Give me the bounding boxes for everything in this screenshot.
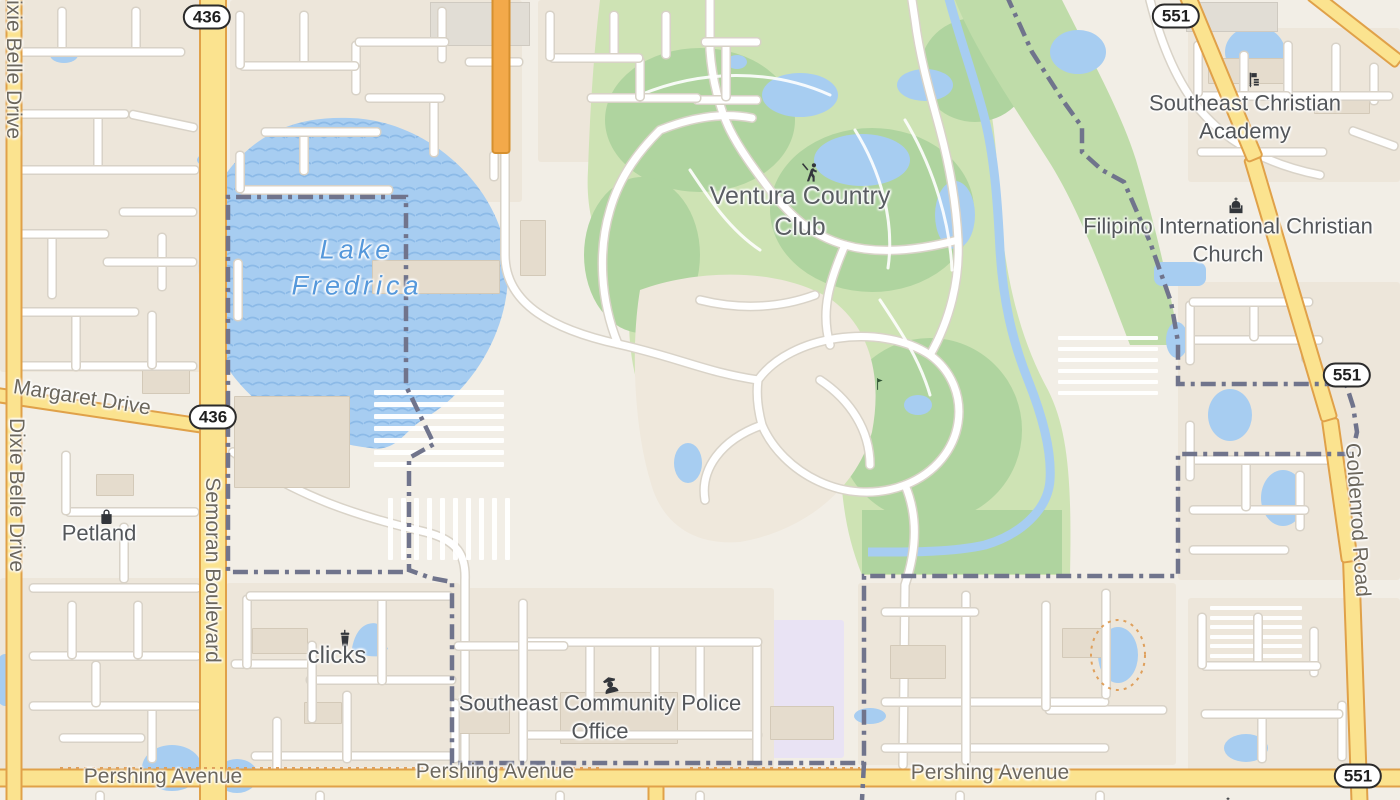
poi-label-petland[interactable]: Petland — [29, 519, 169, 547]
road-label-pershing-west: Pershing Avenue — [84, 764, 242, 790]
route-shield-551-bottom: 551 — [1334, 764, 1382, 789]
route-shield-436-mid: 436 — [189, 405, 237, 430]
poi-label-church[interactable]: Filipino International Christian Church — [1078, 213, 1378, 268]
poi-label-ventura[interactable]: Ventura Country Club — [700, 181, 900, 244]
route-shield-551-top: 551 — [1152, 4, 1200, 29]
road-label-dixie-bottom: Dixie Belle Drive — [3, 418, 29, 572]
poi-label-academy[interactable]: Southeast Christian Academy — [1105, 90, 1385, 145]
poi-label-police[interactable]: Southeast Community Police Office — [450, 690, 750, 745]
road-label-pershing-mid: Pershing Avenue — [416, 759, 574, 785]
road-label-semoran: Semoran Boulevard — [199, 477, 225, 663]
lake-label: Lake Fredrica — [272, 232, 442, 305]
route-shield-551-mid: 551 — [1323, 363, 1371, 388]
road-label-dixie-top: Dixie Belle Drive — [0, 0, 26, 139]
map-canvas[interactable]: Lake Fredrica Ventura Country Club South… — [0, 0, 1400, 800]
road-label-pershing-east: Pershing Avenue — [911, 760, 1069, 786]
route-shield-436-top: 436 — [183, 5, 231, 30]
poi-label-clicks[interactable]: clicks — [277, 641, 397, 671]
